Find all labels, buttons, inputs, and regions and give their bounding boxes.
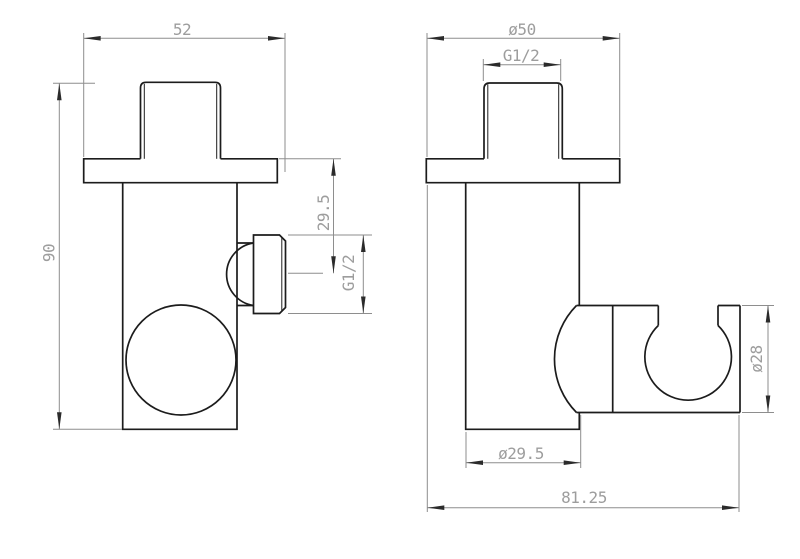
dim-flange-width-label: 52 [173,20,191,39]
side-holder-bracket [554,306,740,413]
dim-overall-depth-label: 81.25 [561,488,607,507]
dim-port-thread-label: G1/2 [339,255,358,292]
port-ball [227,243,254,306]
dim-body-diameter: ø29.5 [466,415,581,468]
dim-inlet-thread: G1/2 [483,46,560,81]
dim-flange-diameter-label: ø50 [508,20,535,39]
front-thread-stub [141,82,221,159]
port-nut [254,235,286,314]
front-body [123,183,237,430]
bracket-clip-arc [645,326,732,401]
bracket-back-bulge [554,306,576,413]
dim-port-center-offset: 29.5 [279,159,341,273]
dim-overall-height: 90 [40,83,123,429]
side-view: ø50 G1/2 ø29.5 81.25 ø28 [426,20,774,512]
dim-holder-diameter: ø28 [742,306,774,413]
dim-overall-height-label: 90 [40,244,59,262]
shower-bracket-technical-drawing: 52 90 29.5 G1/2 [0,0,800,559]
dim-body-diameter-label: ø29.5 [498,444,544,463]
dim-flange-width: 52 [84,20,285,172]
front-side-port [227,235,286,314]
front-view: 52 90 29.5 G1/2 [40,20,373,429]
dim-flange-diameter: ø50 [427,20,620,157]
side-wall-flange [426,159,619,183]
front-holder-circle [126,305,236,415]
dim-port-center-offset-label: 29.5 [314,195,333,232]
dim-inlet-thread-label: G1/2 [503,46,540,65]
dim-port-thread: G1/2 [288,235,372,314]
side-thread-stub [484,83,562,159]
technical-drawing-canvas: 52 90 29.5 G1/2 [0,0,800,559]
front-wall-flange [84,159,278,183]
dim-holder-diameter-label: ø28 [747,345,766,372]
